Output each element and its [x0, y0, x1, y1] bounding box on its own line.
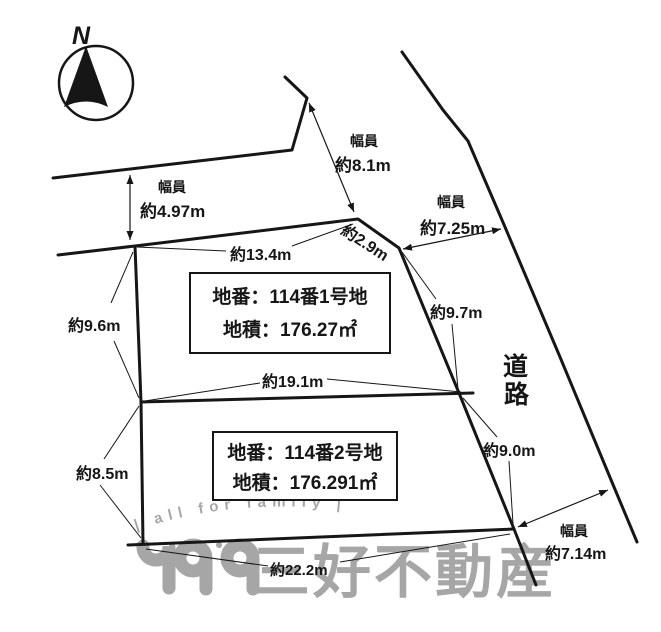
label-4-97m: 約4.97m	[140, 201, 205, 221]
leader-8-5-upper	[104, 406, 139, 459]
leader-8-5-lower	[100, 485, 141, 538]
watermark: | all for family | 三好不動産	[132, 493, 557, 605]
label-fukuin-right-bottom: 幅員	[560, 523, 588, 539]
parcel1-area: 地積：176.27㎡	[223, 318, 357, 341]
leader-9-6-lower	[114, 341, 139, 398]
logo-hook-shape	[143, 546, 169, 588]
plot-diagram: | all for family | 三好不動産 N	[0, 0, 661, 627]
parcel2-lot-number: 地番：114番2号地	[227, 441, 382, 464]
road-label: 道 路	[503, 352, 530, 409]
parcel1-info-box: 地番：114番1号地 地積：176.27㎡	[190, 273, 390, 353]
boundary-parcel-west-edge	[135, 246, 143, 543]
compass-north-icon: N	[59, 22, 133, 120]
leader-19-1-right	[327, 379, 461, 392]
compass-n-label: N	[72, 22, 91, 50]
label-22-2m: 約22.2m	[270, 561, 328, 579]
label-19-1m: 約19.1m	[262, 372, 323, 391]
leader-9-7-upper	[402, 252, 436, 299]
boundary-parcel-divider	[141, 393, 473, 402]
label-9-7m: 約9.7m	[430, 303, 482, 322]
label-8-5m: 約8.5m	[76, 464, 128, 483]
label-13-4m: 約13.4m	[230, 245, 291, 264]
label-fukuin-top: 幅員	[158, 179, 186, 195]
leader-9-6-upper	[111, 252, 133, 303]
label-9-0m: 約9.0m	[483, 441, 535, 460]
label-2-9m: 約2.9m	[338, 220, 392, 265]
label-7-25m: 約7.25m	[420, 218, 485, 238]
logo-dot	[216, 542, 222, 548]
label-fukuin-right-top: 幅員	[437, 194, 465, 210]
road-char-top: 道	[503, 352, 528, 381]
road-char-bottom: 路	[504, 381, 530, 409]
parcel1-lot-number: 地番：114番1号地	[212, 285, 367, 308]
label-9-6m: 約9.6m	[68, 316, 120, 335]
company-logo-icon	[143, 545, 253, 589]
parcel1-box-border	[190, 273, 390, 353]
arrow-road-right-width-bottom	[518, 490, 608, 527]
land-plot-diagram-page: | all for family | 三好不動産 N	[0, 0, 661, 627]
boundary-road-east-edge	[402, 52, 637, 542]
label-fukuin-junction: 幅員	[350, 133, 378, 149]
label-7-14m: 約7.14m	[545, 544, 606, 563]
label-8-1m: 約8.1m	[335, 155, 391, 175]
parcel2-info-box: 地番：114番2号地 地積：176.291㎡	[213, 432, 397, 500]
leader-13-4-left	[137, 247, 226, 251]
parcel2-area: 地積：176.291㎡	[233, 471, 378, 494]
